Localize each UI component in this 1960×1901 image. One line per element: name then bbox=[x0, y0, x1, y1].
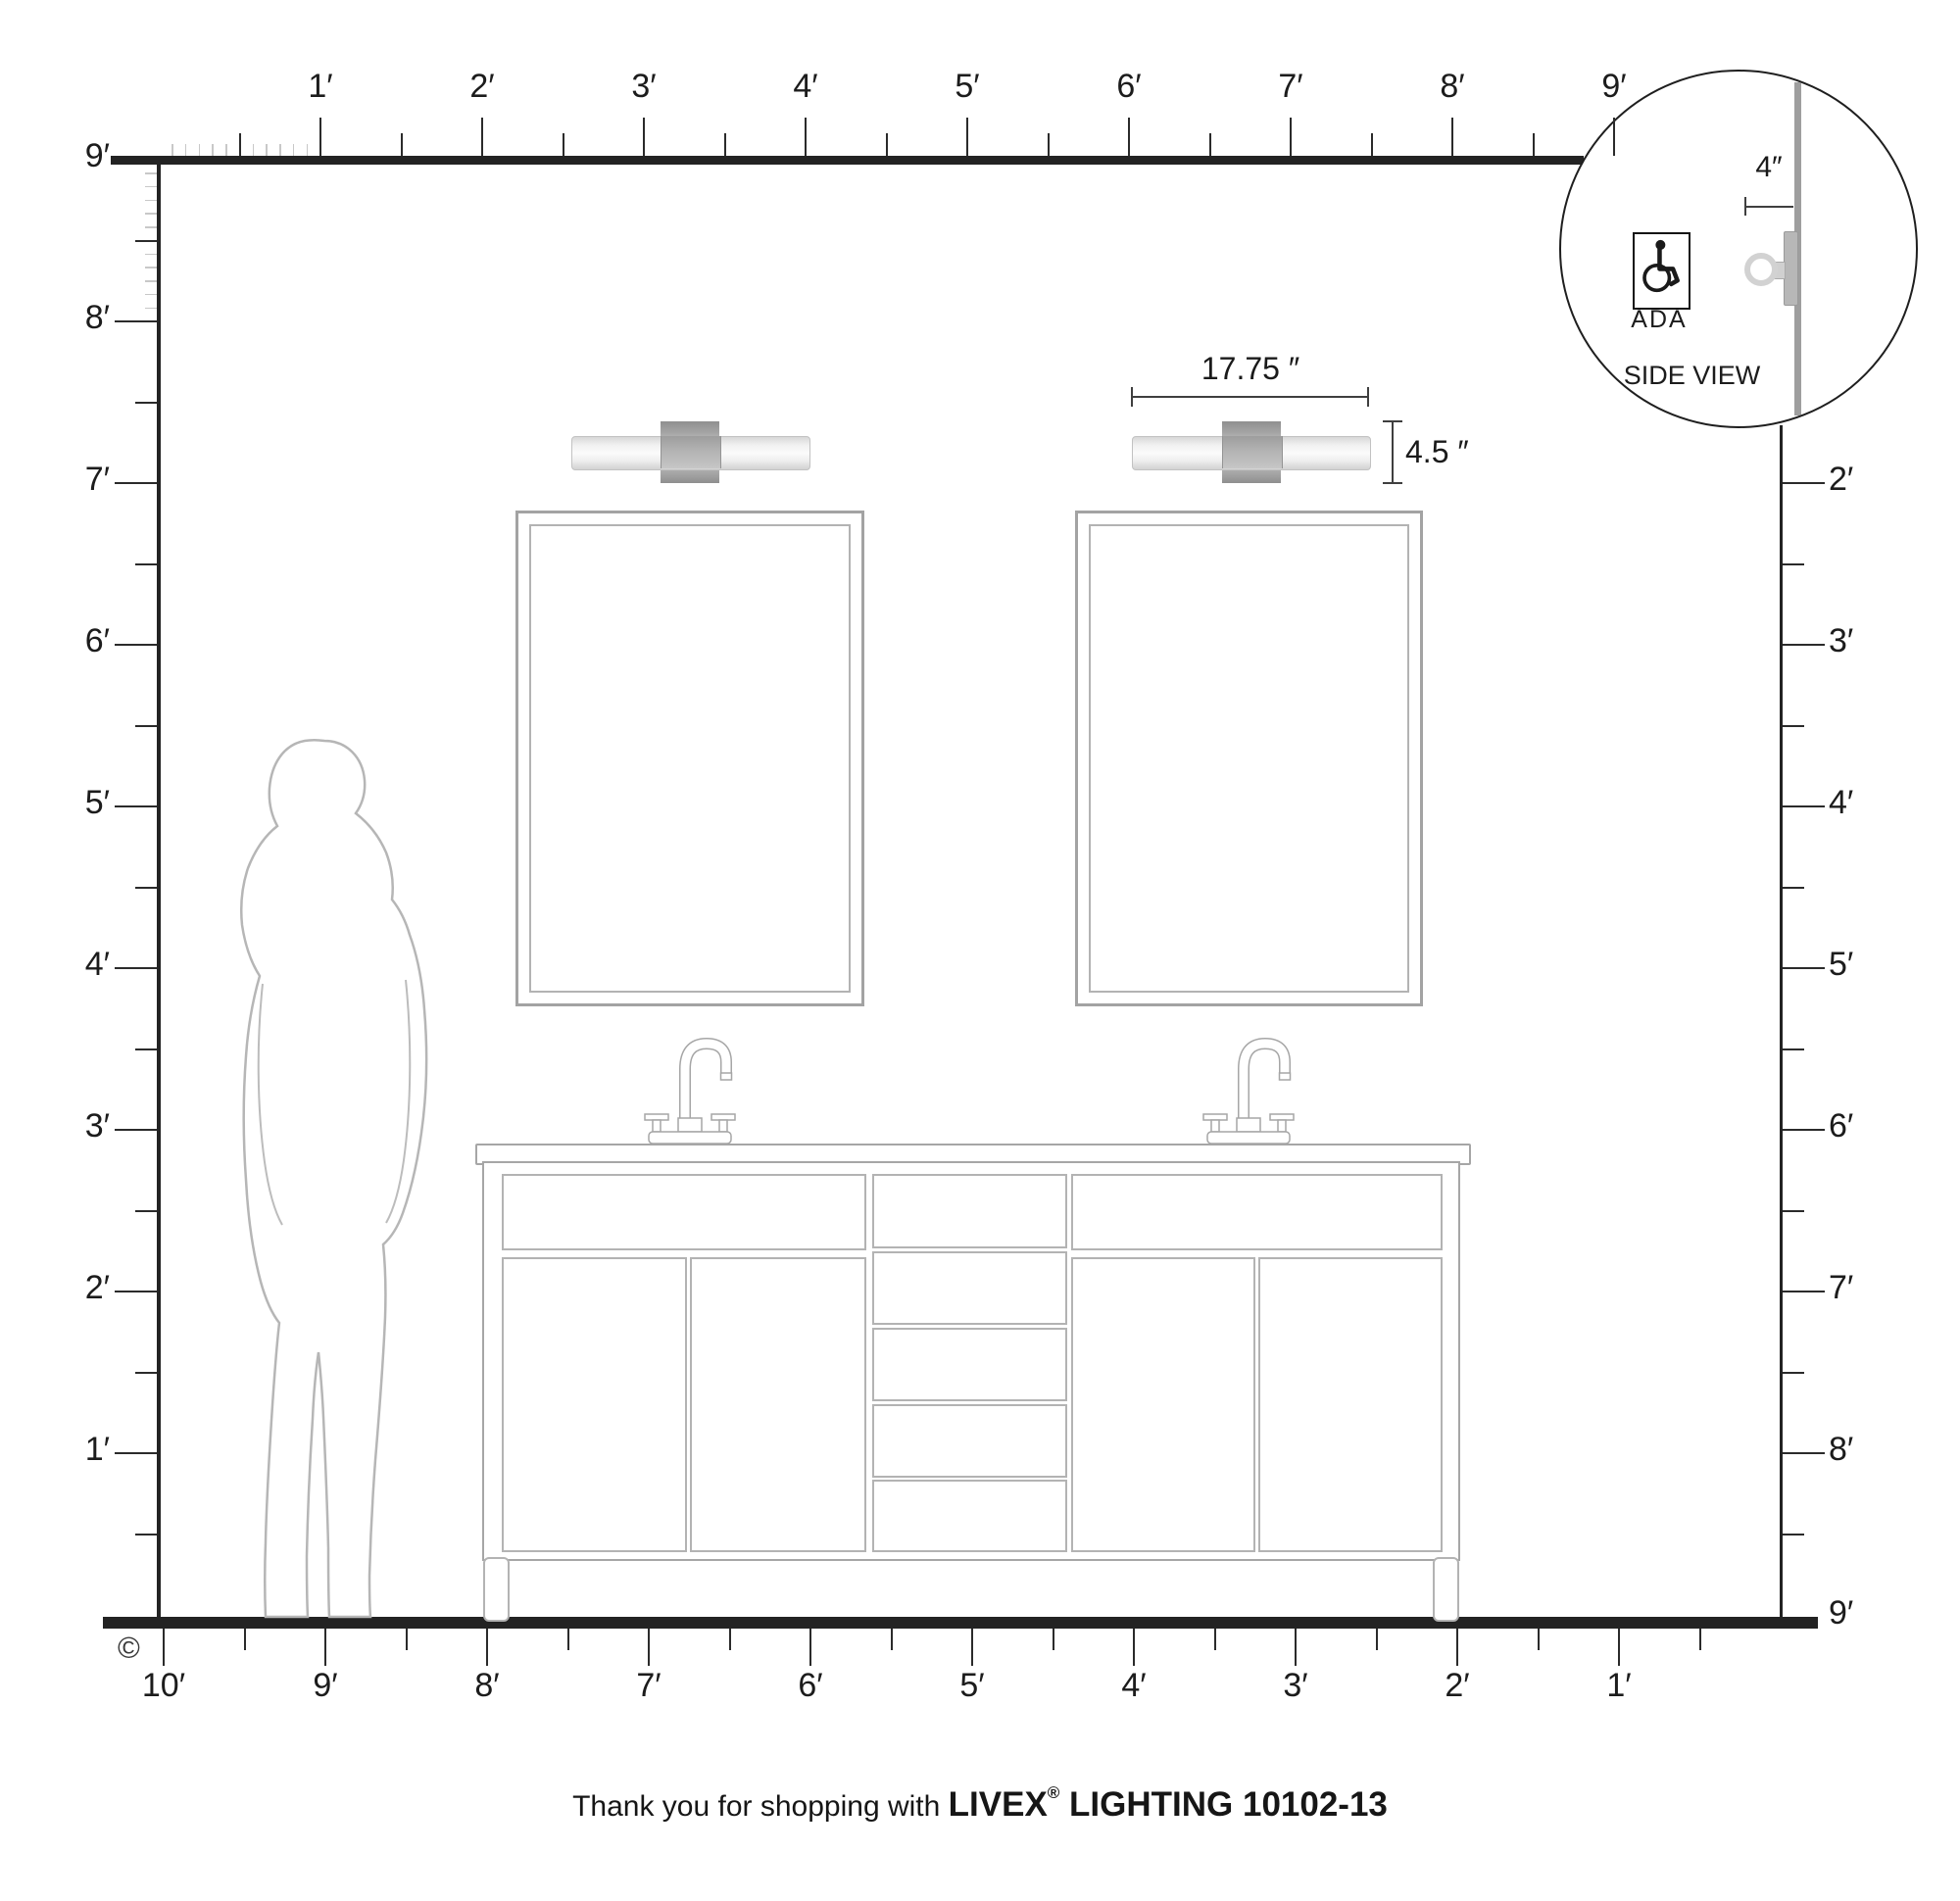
left-wall bbox=[157, 156, 161, 1629]
ruler-tick bbox=[145, 213, 157, 215]
ruler-tick bbox=[1538, 1629, 1540, 1650]
ruler-tick bbox=[1783, 805, 1825, 808]
ruler-tick bbox=[145, 200, 157, 202]
ruler-tick bbox=[135, 1534, 157, 1535]
ruler-tick bbox=[266, 144, 268, 156]
left-ruler-label: 7′ bbox=[57, 462, 110, 498]
vanity-left-door-2 bbox=[690, 1257, 866, 1552]
left-ruler-label: 5′ bbox=[57, 785, 110, 821]
vanity-left-door-1 bbox=[502, 1257, 687, 1552]
left-mirror bbox=[515, 511, 864, 1006]
height-dimension-line bbox=[1392, 421, 1394, 483]
ruler-tick bbox=[225, 144, 227, 156]
ruler-tick bbox=[115, 805, 157, 808]
right-ruler-label: 3′ bbox=[1829, 623, 1887, 659]
footer-product-number: LIGHTING 10102-13 bbox=[1059, 1785, 1388, 1824]
right-mirror-inner-frame bbox=[1089, 524, 1409, 993]
ruler-tick bbox=[809, 1629, 812, 1666]
vanity-left-leg bbox=[483, 1557, 510, 1622]
ruler-tick bbox=[1783, 1129, 1825, 1132]
ruler-tick bbox=[891, 1629, 893, 1650]
sconce-bulb-icon bbox=[1744, 253, 1778, 286]
bottom-ruler-label: 9′ bbox=[286, 1668, 365, 1704]
vanity-right-leg bbox=[1433, 1557, 1459, 1622]
ruler-tick bbox=[244, 1629, 246, 1650]
side-view-caption: SIDE VIEW bbox=[1611, 362, 1773, 391]
right-ruler-label: 5′ bbox=[1829, 947, 1887, 983]
ruler-tick bbox=[135, 402, 157, 404]
bottom-ruler-label: 2′ bbox=[1418, 1668, 1496, 1704]
ruler-tick bbox=[406, 1629, 408, 1650]
top-ruler-label: 8′ bbox=[1423, 69, 1482, 105]
ruler-tick bbox=[1290, 118, 1293, 156]
top-ruler-label: 9′ bbox=[1585, 69, 1643, 105]
ruler-tick bbox=[481, 118, 484, 156]
right-ruler-label: 9′ bbox=[1829, 1595, 1887, 1632]
bottom-ruler-label: 6′ bbox=[771, 1668, 850, 1704]
ruler-tick bbox=[1783, 1452, 1825, 1455]
ruler-tick bbox=[135, 1048, 157, 1050]
width-dimension-tick-right bbox=[1367, 387, 1369, 407]
ruler-tick bbox=[567, 1629, 569, 1650]
ruler-tick bbox=[1295, 1629, 1298, 1666]
ruler-tick bbox=[324, 1629, 327, 1666]
vanity-left-top-panel bbox=[502, 1174, 866, 1250]
ceiling-bar bbox=[111, 156, 1584, 165]
ruler-tick bbox=[1128, 118, 1131, 156]
ruler-tick bbox=[1783, 482, 1825, 485]
ruler-tick bbox=[1048, 133, 1050, 156]
right-fixture-mount-front bbox=[1222, 436, 1283, 468]
depth-dimension-line bbox=[1745, 206, 1793, 208]
ruler-tick bbox=[293, 144, 295, 156]
bottom-ruler-label: 4′ bbox=[1095, 1668, 1173, 1704]
ruler-tick bbox=[135, 1372, 157, 1374]
height-dimension-tick-bottom bbox=[1383, 482, 1402, 484]
ruler-tick bbox=[1214, 1629, 1216, 1650]
ruler-tick bbox=[171, 144, 173, 156]
ruler-tick bbox=[1376, 1629, 1378, 1650]
ruler-tick bbox=[185, 144, 187, 156]
top-ruler-label: 3′ bbox=[614, 69, 673, 105]
vanity-drawer-5 bbox=[872, 1480, 1067, 1552]
bottom-ruler-label: 8′ bbox=[448, 1668, 526, 1704]
footer-text: Thank you for shopping with LIVEX® LIGHT… bbox=[0, 1783, 1960, 1825]
ruler-tick bbox=[135, 1210, 157, 1212]
top-ruler-label: 5′ bbox=[938, 69, 997, 105]
left-ruler-label: 8′ bbox=[57, 300, 110, 336]
ruler-tick bbox=[135, 725, 157, 727]
right-ruler-label: 6′ bbox=[1829, 1108, 1887, 1145]
right-ruler-label: 2′ bbox=[1829, 462, 1887, 498]
top-ruler-label: 7′ bbox=[1261, 69, 1320, 105]
ruler-tick bbox=[1783, 563, 1804, 565]
ada-compliance-badge bbox=[1633, 232, 1690, 310]
ruler-tick bbox=[212, 144, 214, 156]
left-mirror-inner-frame bbox=[529, 524, 851, 993]
vanity-drawer-2 bbox=[872, 1251, 1067, 1325]
ruler-tick bbox=[1783, 1372, 1804, 1374]
height-dimension-tick-top bbox=[1383, 420, 1402, 422]
width-dimension-line bbox=[1132, 396, 1369, 398]
ruler-tick bbox=[253, 144, 255, 156]
ruler-tick bbox=[145, 308, 157, 310]
ruler-tick bbox=[648, 1629, 651, 1666]
ruler-tick bbox=[724, 133, 726, 156]
top-ruler-label: 2′ bbox=[453, 69, 512, 105]
ruler-tick bbox=[199, 144, 201, 156]
left-ruler-label: 9′ bbox=[57, 138, 110, 174]
ruler-tick bbox=[145, 226, 157, 228]
ruler-tick bbox=[886, 133, 888, 156]
width-dimension-label: 17.75 ″ bbox=[1152, 351, 1348, 387]
sconce-mount-plate bbox=[1784, 231, 1798, 306]
ruler-tick bbox=[401, 133, 403, 156]
bottom-ruler-label: 5′ bbox=[933, 1668, 1011, 1704]
right-ruler-label: 8′ bbox=[1829, 1432, 1887, 1468]
vanity-right-top-panel bbox=[1071, 1174, 1443, 1250]
ruler-tick bbox=[145, 267, 157, 268]
ruler-tick bbox=[1133, 1629, 1136, 1666]
right-wall bbox=[1780, 425, 1784, 1617]
ruler-tick bbox=[1783, 1291, 1825, 1293]
ruler-tick bbox=[115, 482, 157, 485]
ruler-tick bbox=[643, 118, 646, 156]
ruler-tick bbox=[145, 254, 157, 256]
registered-trademark-icon: ® bbox=[1048, 1783, 1060, 1802]
footer-prefix: Thank you for shopping with bbox=[572, 1790, 949, 1823]
ruler-tick bbox=[145, 172, 157, 174]
ruler-tick bbox=[1053, 1629, 1054, 1650]
ruler-tick bbox=[805, 118, 808, 156]
ada-label: ADA bbox=[1627, 307, 1691, 334]
ruler-tick bbox=[1783, 1210, 1804, 1212]
ruler-tick bbox=[1783, 725, 1804, 727]
left-ruler-label: 2′ bbox=[57, 1270, 110, 1306]
left-fixture-mount-front bbox=[661, 436, 721, 468]
ruler-tick bbox=[115, 1129, 157, 1132]
vanity-drawer-1 bbox=[872, 1174, 1067, 1248]
ruler-tick bbox=[1456, 1629, 1459, 1666]
right-ruler-label: 4′ bbox=[1829, 785, 1887, 821]
bottom-ruler-label: 1′ bbox=[1580, 1668, 1658, 1704]
copyright-symbol: © bbox=[118, 1631, 140, 1666]
depth-dimension-tick bbox=[1744, 197, 1746, 216]
ruler-tick bbox=[1209, 133, 1211, 156]
vanity-drawer-3 bbox=[872, 1328, 1067, 1401]
ruler-tick bbox=[145, 186, 157, 188]
ruler-tick bbox=[1783, 644, 1825, 647]
ruler-tick bbox=[135, 240, 157, 242]
vanity-right-door-2 bbox=[1258, 1257, 1443, 1552]
ruler-tick bbox=[239, 133, 241, 156]
ruler-tick bbox=[115, 320, 157, 323]
left-ruler-label: 3′ bbox=[57, 1108, 110, 1145]
ruler-tick bbox=[563, 133, 564, 156]
right-mirror bbox=[1075, 511, 1423, 1006]
wheelchair-icon bbox=[1635, 234, 1684, 303]
ruler-tick bbox=[1699, 1629, 1701, 1650]
right-ruler-label: 7′ bbox=[1829, 1270, 1887, 1306]
ruler-tick bbox=[115, 1452, 157, 1455]
dimension-diagram: 1′ 2′ 3′ 4′ 5′ 6′ 7′ 8′ 9′ 9′ 8′ 7′ 6′ 5… bbox=[0, 0, 1960, 1901]
ruler-tick bbox=[279, 144, 281, 156]
top-ruler-label: 1′ bbox=[291, 69, 350, 105]
ruler-tick bbox=[1533, 133, 1535, 156]
height-dimension-label: 4.5 ″ bbox=[1405, 434, 1469, 470]
ruler-tick bbox=[135, 563, 157, 565]
left-ruler-label: 1′ bbox=[57, 1432, 110, 1468]
ruler-tick bbox=[145, 280, 157, 282]
vanity-right-door-1 bbox=[1071, 1257, 1255, 1552]
ruler-tick bbox=[1618, 1629, 1621, 1666]
ruler-tick bbox=[1613, 118, 1616, 156]
ruler-tick bbox=[145, 294, 157, 296]
left-ruler-label: 6′ bbox=[57, 623, 110, 659]
ruler-tick bbox=[163, 1629, 166, 1666]
ruler-tick bbox=[729, 1629, 731, 1650]
right-faucet bbox=[1190, 1030, 1307, 1147]
ruler-tick bbox=[135, 887, 157, 889]
ruler-tick bbox=[319, 118, 322, 156]
top-ruler-label: 4′ bbox=[776, 69, 835, 105]
ruler-tick bbox=[1783, 1534, 1804, 1535]
depth-dimension-label: 4″ bbox=[1739, 151, 1798, 184]
bottom-ruler-label: 7′ bbox=[610, 1668, 688, 1704]
ruler-tick bbox=[966, 118, 969, 156]
ruler-tick bbox=[115, 644, 157, 647]
top-ruler-label: 6′ bbox=[1100, 69, 1158, 105]
ruler-tick bbox=[1783, 1048, 1804, 1050]
bottom-ruler-label: 10′ bbox=[124, 1668, 203, 1704]
width-dimension-tick-left bbox=[1131, 387, 1133, 407]
footer-brand: LIVEX bbox=[949, 1785, 1048, 1824]
scale-figure-silhouette bbox=[201, 733, 465, 1620]
ruler-tick bbox=[115, 967, 157, 970]
ruler-tick bbox=[115, 1291, 157, 1293]
ruler-tick bbox=[1783, 887, 1804, 889]
ruler-tick bbox=[1783, 967, 1825, 970]
ruler-tick bbox=[1451, 118, 1454, 156]
ruler-tick bbox=[307, 144, 309, 156]
bottom-ruler-label: 3′ bbox=[1256, 1668, 1335, 1704]
ruler-tick bbox=[971, 1629, 974, 1666]
vanity-drawer-4 bbox=[872, 1404, 1067, 1478]
left-faucet bbox=[631, 1030, 749, 1147]
left-ruler-label: 4′ bbox=[57, 947, 110, 983]
ruler-tick bbox=[486, 1629, 489, 1666]
ruler-tick bbox=[1371, 133, 1373, 156]
